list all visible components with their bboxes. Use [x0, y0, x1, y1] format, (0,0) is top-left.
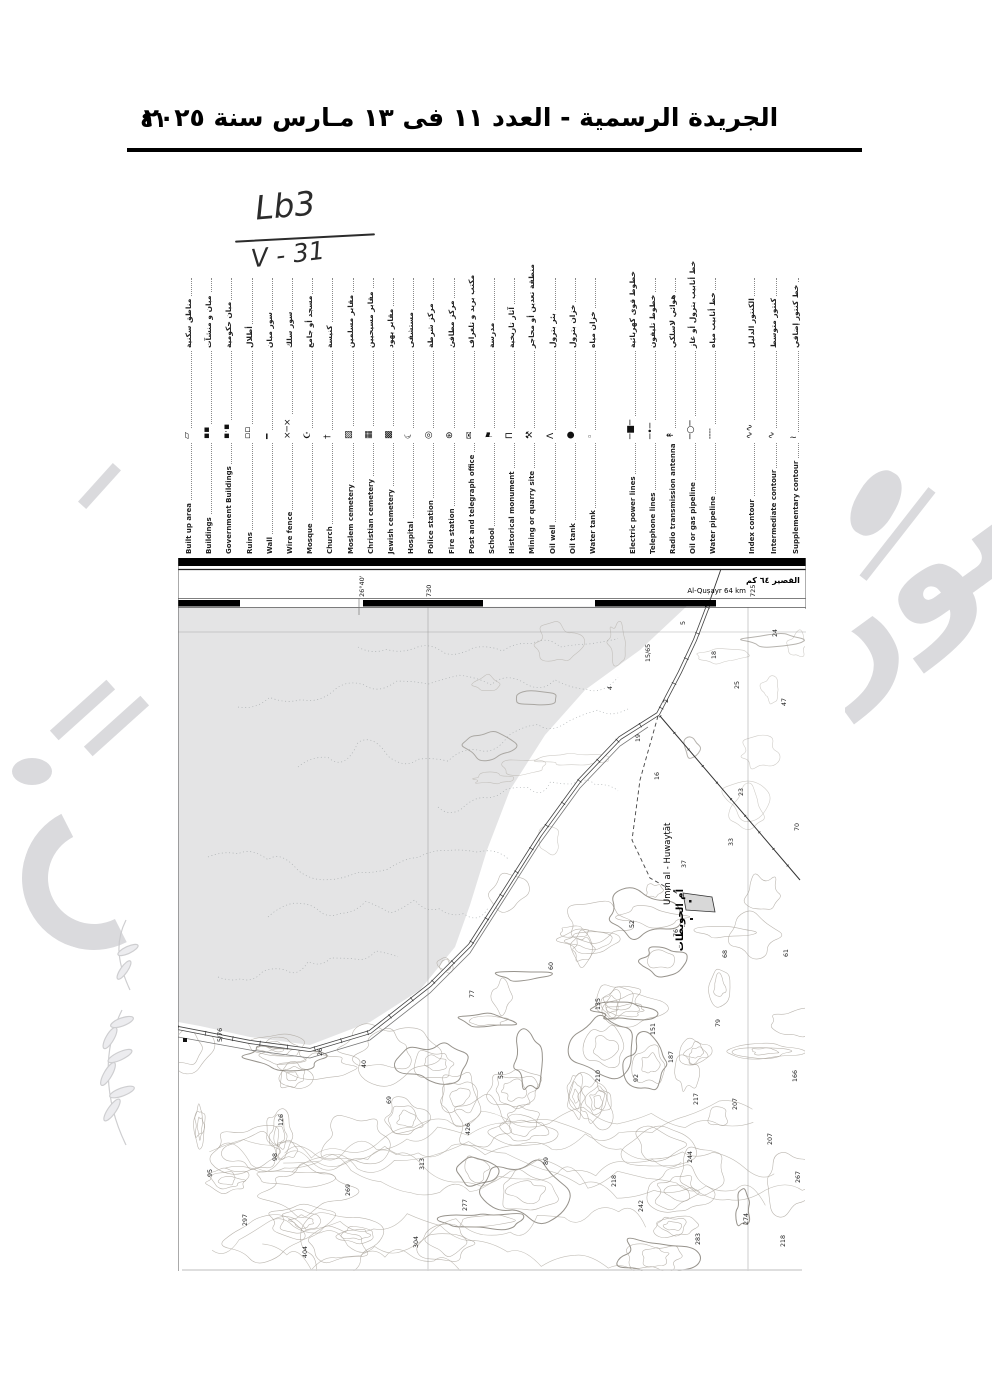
post-telegraph-office-symbol-icon: ✉ [466, 428, 475, 442]
legend-arabic-label: مبان و منشآت [205, 294, 213, 351]
legend-arabic-label: سور سلك [286, 310, 294, 350]
ruins-symbol-icon: ▫▫ [244, 424, 253, 442]
supplementary-contour-symbol-icon: ≀ [790, 433, 799, 442]
hospital-symbol-icon: ☾ [405, 428, 414, 442]
village-building-icon [689, 900, 692, 903]
legend-dotted-leader [252, 278, 253, 548]
wire-fence-symbol-icon: ×─× [284, 415, 293, 442]
legend-english-label: Oil or gas pipeline [690, 480, 697, 556]
legend-item-oil-well: بئر بترولΛOil well [545, 262, 565, 564]
legend-english-label: Moslem cemetery [348, 482, 355, 556]
legend-english-label: Electric power lines [630, 475, 637, 556]
spot-height: 5 [680, 621, 687, 625]
legend-item-mining-quarry-site: منطقة تعدين أو محاجر⚒Mining or quarry si… [524, 262, 544, 564]
legend-item-radio-transmission-antenna: هوائي لاسلكي↟Radio transmission antenna [665, 262, 685, 564]
page-number: ٤١ [140, 108, 167, 133]
spot-height: 5/76 [217, 1028, 224, 1042]
legend-dotted-leader [494, 278, 495, 548]
legend-item-church: كنيسة†Church [322, 262, 342, 564]
oil-tank-symbol-icon: ● [567, 428, 576, 442]
legend-english-label: Christian cemetery [368, 477, 375, 556]
spot-height: 267 [795, 1171, 802, 1183]
legend-arabic-label: مقابر مسلمين [347, 293, 355, 350]
spot-height: 18 [711, 651, 718, 659]
spot-height: 207 [767, 1133, 774, 1145]
legend-item-telephone-lines: خطوط تليفون─•─Telephone lines [645, 262, 665, 564]
spot-height: 218 [611, 1175, 618, 1187]
spot-height: 98 [272, 1153, 279, 1161]
school-symbol-icon: ⚑ [486, 428, 495, 442]
water-pipeline-symbol-icon: ╌╌ [707, 425, 716, 442]
watermark-laurel-icon [86, 860, 146, 1150]
telephone-lines-symbol-icon: ─•─ [647, 420, 656, 442]
legend-item-fire-station: مركز مطافئ⊛Fire station [444, 262, 464, 564]
spot-height: 16 [654, 772, 661, 780]
intermediate-contour-symbol-icon: ∿ [768, 428, 777, 442]
spot-height: 25 [734, 681, 741, 689]
legend-item-intermediate-contour: كنتور متوسط∿Intermediate contour [766, 262, 786, 564]
spot-height: 304 [413, 1236, 420, 1248]
legend-item-moslem-cemetery: مقابر مسلمين▨Moslem cemetery [343, 262, 363, 564]
spot-height: 40 [361, 1060, 368, 1068]
legend-english-label: Oil well [550, 523, 557, 556]
legend-english-label: Index contour [749, 497, 756, 556]
handwritten-code-line1: Lb3 [253, 183, 316, 227]
spot-height: 207 [732, 1098, 739, 1110]
legend-english-label: Wall [267, 535, 274, 556]
watermark-slash-icon [859, 487, 935, 581]
legend-item-oil-tank: خزان بترول●Oil tank [565, 262, 585, 564]
legend-english-label: Buildings [206, 515, 213, 556]
water-tank-symbol-icon: ◦ [587, 431, 596, 442]
legend-arabic-label: خط أنابيب بترول أو غاز [689, 259, 697, 350]
spot-height: 151 [650, 1023, 657, 1035]
police-station-symbol-icon: ◎ [425, 428, 434, 442]
topographic-map: 515/654219182524471623703337527668615/76… [178, 557, 806, 1273]
legend-english-label: Built up area [186, 501, 193, 556]
spot-height: 70 [794, 823, 801, 831]
spot-height: 277 [462, 1199, 469, 1211]
spot-height: 69 [386, 1096, 393, 1104]
legend-english-label: Water tank [590, 508, 597, 556]
legend-arabic-label: مقابر مسيحيين [367, 289, 375, 350]
legend-english-label: School [489, 526, 496, 556]
spot-height: 313 [419, 1158, 426, 1170]
spot-height: 52 [629, 920, 636, 928]
spot-height: 47 [781, 698, 788, 706]
built-up-area-symbol-icon: ▱ [183, 429, 192, 442]
watermark-stroke-icon [78, 463, 121, 509]
spot-height: 283 [695, 1233, 702, 1245]
church-symbol-icon: † [324, 432, 333, 443]
jewish-cemetery-symbol-icon: ▩ [385, 427, 394, 442]
legend-arabic-label: خط أنابيب مياه [709, 290, 717, 350]
radio-transmission-antenna-symbol-icon: ↟ [667, 428, 676, 442]
spot-height: 33 [728, 838, 735, 846]
spot-height: 218 [780, 1235, 787, 1247]
spot-height: 60 [548, 962, 555, 970]
legend-item-ruins: أطلال▫▫Ruins [242, 262, 262, 564]
legend-arabic-label: كنيسة [326, 323, 334, 350]
legend-arabic-label: سور مبان [266, 310, 274, 350]
fire-station-symbol-icon: ⊛ [446, 428, 455, 442]
spot-height: 95 [207, 1169, 214, 1177]
legend-english-label: Intermediate contour [771, 468, 778, 556]
legend-english-label: Mining or quarry site [529, 469, 536, 556]
straight-track [660, 716, 800, 880]
moslem-cemetery-symbol-icon: ▨ [345, 427, 354, 442]
legend-dotted-leader [332, 278, 333, 548]
legend-arabic-label: الكنتور الدليل [748, 296, 756, 350]
watermark-slash-icon [841, 463, 911, 544]
legend-arabic-label: هوائي لاسلكي [669, 293, 677, 350]
legend-english-label: Church [327, 524, 334, 556]
spot-height: 23 [738, 788, 745, 796]
legend-item-buildings: مبان و منشآت▪▪Buildings [201, 262, 221, 564]
building-near-road-icon [183, 1038, 187, 1042]
legend-english-label: Wire fence [287, 510, 294, 556]
spot-height: 297 [242, 1214, 249, 1226]
spot-height: 242 [638, 1200, 645, 1212]
legend-english-label: Water pipeline [710, 494, 717, 556]
index-contour-symbol-icon: ∿∿ [746, 421, 755, 442]
christian-cemetery-symbol-icon: ▦ [365, 427, 374, 442]
village-footprint [683, 893, 715, 912]
spot-height: 187 [668, 1051, 675, 1063]
band-black-segment [178, 600, 240, 607]
legend-english-label: Fire station [449, 506, 456, 556]
grid-label-730: 730 [425, 585, 433, 597]
spot-height: 37 [681, 860, 688, 868]
legend-arabic-label: خط كنتور إضافي [792, 283, 800, 350]
spot-height: 68 [722, 950, 729, 958]
legend-arabic-label: مبان حكومية [225, 300, 233, 350]
legend-arabic-label: خطوط قوى كهربائية [629, 269, 637, 350]
legend-item-jewish-cemetery: مقابر يهود▩Jewish cemetery [383, 262, 403, 564]
spot-height: 426 [465, 1123, 472, 1135]
legend-item-built-up-area: مناطق سكنية▱Built up area [181, 262, 201, 564]
legend-arabic-label: مدرسة [488, 321, 496, 350]
legend-arabic-label: مكتب بريد و تلغراف [468, 273, 476, 350]
oil-well-symbol-icon: Λ [547, 430, 556, 442]
watermark-stroke-icon [50, 680, 115, 741]
legend-arabic-label: مقابر يهود [387, 307, 395, 350]
legend-item-electric-power-lines: خطوط قوى كهربائية─■─Electric power lines [625, 262, 645, 564]
legend-english-label: Government Buildings [226, 464, 233, 556]
legend-item-wall: سور مبان━Wall [262, 262, 282, 564]
historical-monument-symbol-icon: Π [506, 429, 515, 442]
watermark-stroke-icon [84, 696, 149, 757]
legend-arabic-label: بئر بترول [549, 311, 557, 350]
legend-item-christian-cemetery: مقابر مسيحيين▦Christian cemetery [363, 262, 383, 564]
place-label-arabic: أم الحويطات [673, 889, 686, 951]
legend-arabic-label: منطقة تعدين أو محاجر [528, 262, 536, 350]
legend-english-label: Jewish cemetery [388, 487, 395, 556]
scanned-map-sheet: Lb3 V - 31 مناطق سكنية▱Built up areaمبان… [163, 176, 845, 1276]
spot-height: 77 [469, 990, 476, 998]
legend-item-police-station: مركز شرطة◎Police station [423, 262, 443, 564]
sheet-top-bar [178, 558, 806, 566]
band-black-segment [363, 600, 483, 607]
spot-height: 89 [543, 1157, 550, 1165]
legend-arabic-label: خزان بترول [569, 303, 577, 350]
spot-height: 92 [633, 1074, 640, 1082]
header-rule [127, 148, 862, 152]
spot-height: 19 [635, 734, 642, 742]
gray-plain-area [178, 606, 687, 1045]
oil-gas-pipeline-symbol-icon: ─○─ [687, 417, 696, 442]
spot-height: 404 [302, 1246, 309, 1258]
legend-arabic-label: خزان مياه [589, 309, 597, 350]
destination-label-english: Al-Quṣayr 64 km [687, 587, 746, 595]
legend-item-mosque: مسجد أو جامع☪Mosque [302, 262, 322, 564]
legend-item-water-tank: خزان مياه◦Water tank [585, 262, 605, 564]
spot-height: 24 [772, 629, 779, 637]
legend-english-label: Mosque [307, 521, 314, 556]
legend-item-wire-fence: سور سلك×─×Wire fence [282, 262, 302, 564]
gazette-header-title: الجريدة الرسمية - العدد ١١ فى ١٣ مـارس س… [0, 103, 922, 132]
legend-item-school: مدرسة⚑School [484, 262, 504, 564]
government-buildings-symbol-icon: ▪·▪ [223, 421, 232, 442]
mosque-symbol-icon: ☪ [304, 428, 313, 442]
legend-item-index-contour: الكنتور الدليل∿∿Index contour [744, 262, 764, 564]
legend-english-label: Police station [428, 498, 435, 556]
spot-height: 26 [317, 1048, 324, 1056]
legend-english-label: Telephone lines [650, 491, 657, 556]
legend-item-water-pipeline: خط أنابيب مياه╌╌Water pipeline [705, 262, 725, 564]
legend-item-government-buildings: مبان حكومية▪·▪Government Buildings [221, 262, 241, 564]
legend-arabic-label: مناطق سكنية [185, 297, 193, 350]
legend-arabic-label: خطوط تليفون [649, 293, 657, 350]
legend-arabic-label: مسجد أو جامع [306, 294, 314, 350]
legend-arabic-label: مستشفى [407, 310, 415, 350]
spot-height: 4 [607, 686, 614, 690]
spot-height: 135 [595, 998, 602, 1010]
spot-height: 274 [743, 1213, 750, 1225]
legend-item-post-telegraph-office: مكتب بريد و تلغراف✉Post and telegraph of… [464, 262, 484, 564]
legend-arabic-label: مركز مطافئ [448, 299, 456, 351]
buildings-symbol-icon: ▪▪ [203, 424, 212, 442]
spot-height: 217 [693, 1093, 700, 1105]
legend-arabic-label: كنتور متوسط [770, 296, 778, 350]
legend-item-supplementary-contour: خط كنتور إضافي≀Supplementary contour [788, 262, 808, 564]
legend-english-label: Historical monument [509, 469, 516, 556]
legend-english-label: Oil tank [570, 521, 577, 556]
spot-height: 166 [792, 1070, 799, 1082]
band-black-segment [595, 600, 716, 607]
electric-power-lines-symbol-icon: ─■─ [627, 417, 636, 442]
legend-arabic-label: آثار تاريخية [508, 305, 516, 350]
watermark-crescent-icon [3, 787, 184, 968]
legend-arabic-label: أطلال [246, 324, 254, 350]
spot-height: 61 [783, 949, 790, 957]
spot-height: 15/65 [645, 644, 652, 662]
watermark-dot-icon [12, 758, 52, 785]
legend-item-historical-monument: آثار تاريخيةΠHistorical monument [504, 262, 524, 564]
gazette-page: { "header": { "title": "الجريدة الرسمية … [0, 0, 992, 1400]
legend-english-label: Ruins [247, 530, 254, 556]
spot-height: 244 [687, 1151, 694, 1163]
destination-label-arabic: القصير ٦٤ كم [746, 576, 800, 585]
mining-quarry-site-symbol-icon: ⚒ [526, 428, 535, 442]
spot-height: 210 [595, 1070, 602, 1082]
legend-item-oil-gas-pipeline: خط أنابيب بترول أو غاز─○─Oil or gas pipe… [685, 262, 705, 564]
legend-arabic-label: مركز شرطة [427, 301, 435, 350]
spot-height: 126 [278, 1114, 285, 1126]
spot-height: 79 [715, 1019, 722, 1027]
spot-height: 269 [345, 1184, 352, 1196]
small-building-icon [690, 918, 693, 920]
grid-label-725: 725 [749, 585, 757, 597]
legend-english-label: Post and telegraph office [469, 453, 476, 556]
place-label-english: Umm al - Huwayṭāt [663, 822, 673, 905]
legend-english-label: Hospital [408, 519, 415, 556]
graticule-label: 26°40' [358, 575, 366, 597]
legend-english-label: Radio transmission antenna [670, 441, 677, 556]
wall-symbol-icon: ━ [264, 431, 273, 442]
spot-height: 55 [498, 1071, 505, 1079]
spot-height: 2 [663, 699, 670, 703]
legend-english-label: Supplementary contour [793, 459, 800, 556]
legend-item-hospital: مستشفى☾Hospital [403, 262, 423, 564]
